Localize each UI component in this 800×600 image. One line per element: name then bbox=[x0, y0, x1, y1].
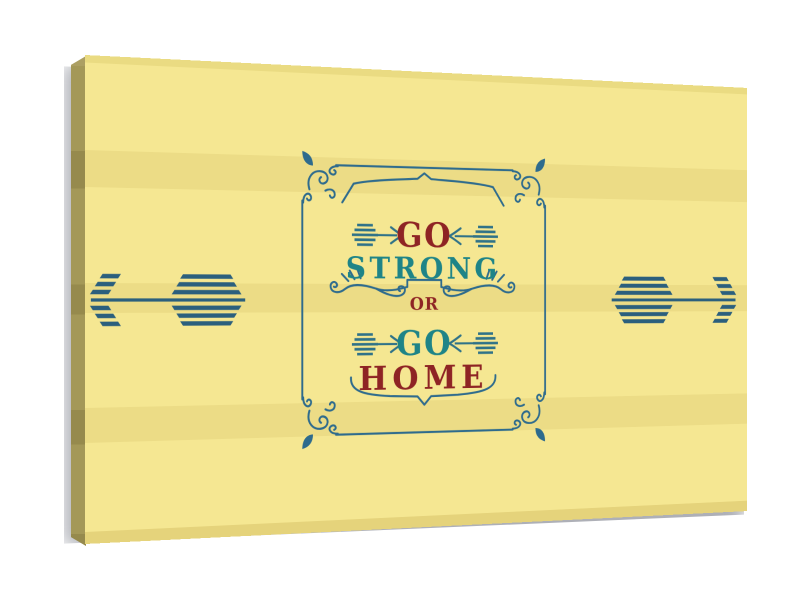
mini-arrow-right-of-go-2-icon bbox=[450, 332, 498, 354]
word-home: HOME bbox=[358, 361, 488, 396]
word-or: OR bbox=[410, 296, 439, 314]
word-go-1: GO bbox=[396, 218, 452, 252]
mini-arrow-left-of-go-1-icon bbox=[352, 224, 402, 247]
big-arrow-right-icon bbox=[612, 276, 736, 323]
canvas-side-edge bbox=[71, 56, 86, 546]
canvas-print-photo: GO STRONG OR GO HOME bbox=[0, 0, 800, 600]
mini-arrow-right-of-go-1-icon bbox=[450, 225, 498, 247]
canvas-front: GO STRONG OR GO HOME bbox=[85, 55, 747, 544]
shield-crest-ornament bbox=[342, 171, 503, 206]
word-strong: STRONG bbox=[346, 253, 501, 284]
word-go-2: GO bbox=[396, 327, 452, 361]
big-arrow-left-icon bbox=[90, 274, 245, 327]
mini-arrow-left-of-go-2-icon bbox=[352, 333, 402, 356]
